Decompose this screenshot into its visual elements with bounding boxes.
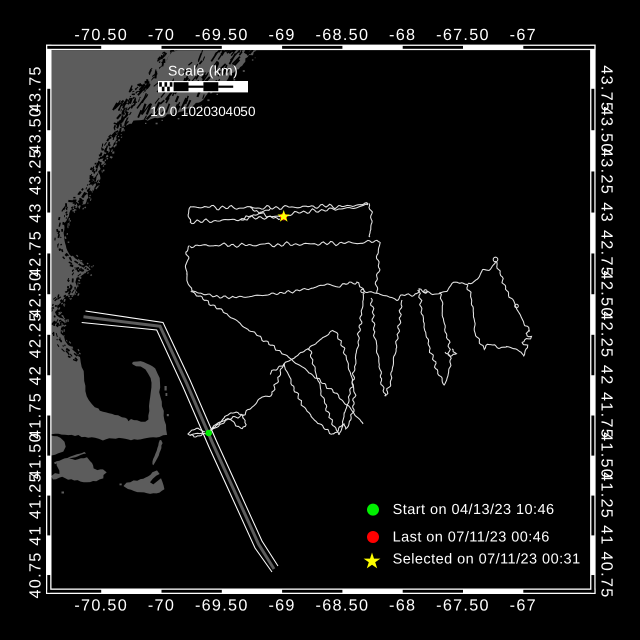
svg-text:43.75: 43.75 [598, 65, 616, 112]
svg-text:43: 43 [27, 202, 45, 223]
svg-text:43.50: 43.50 [27, 107, 45, 154]
svg-text:Selected on 07/11/23 00:31: Selected on 07/11/23 00:31 [393, 552, 581, 568]
svg-text:-68.50: -68.50 [316, 597, 370, 615]
svg-text:Start on 04/13/23 10:46: Start on 04/13/23 10:46 [393, 502, 555, 518]
svg-text:42.25: 42.25 [598, 311, 616, 358]
svg-text:-67.50: -67.50 [436, 26, 490, 44]
svg-text:40: 40 [225, 104, 240, 119]
svg-text:42.50: 42.50 [27, 271, 45, 318]
svg-text:42.75: 42.75 [27, 230, 45, 277]
svg-text:-70: -70 [148, 26, 175, 44]
svg-text:40.75: 40.75 [27, 551, 45, 598]
svg-text:20: 20 [196, 104, 211, 119]
svg-text:10: 10 [181, 104, 196, 119]
svg-text:41: 41 [598, 525, 616, 546]
svg-text:-67: -67 [510, 26, 537, 44]
svg-text:-69.50: -69.50 [195, 26, 249, 44]
svg-text:-68.50: -68.50 [316, 26, 370, 44]
svg-text:40.75: 40.75 [598, 551, 616, 598]
svg-text:41.50: 41.50 [27, 432, 45, 479]
svg-text:Last on 07/11/23 00:46: Last on 07/11/23 00:46 [393, 529, 550, 545]
svg-text:50: 50 [240, 104, 255, 119]
svg-text:41.75: 41.75 [27, 392, 45, 439]
svg-text:42.25: 42.25 [27, 311, 45, 358]
svg-text:30: 30 [211, 104, 226, 119]
svg-text:0: 0 [170, 104, 178, 119]
svg-text:-69.50: -69.50 [195, 597, 249, 615]
svg-text:-70: -70 [148, 597, 175, 615]
svg-text:42: 42 [27, 365, 45, 386]
svg-text:-67.50: -67.50 [436, 597, 490, 615]
svg-text:41.25: 41.25 [27, 472, 45, 519]
svg-text:-70.50: -70.50 [74, 26, 128, 44]
svg-text:41: 41 [27, 525, 45, 546]
svg-text:-70.50: -70.50 [74, 597, 128, 615]
svg-text:-68: -68 [389, 597, 416, 615]
svg-text:43: 43 [598, 202, 616, 223]
svg-text:-68: -68 [389, 26, 416, 44]
svg-text:43.75: 43.75 [27, 65, 45, 112]
svg-text:41.25: 41.25 [598, 472, 616, 519]
svg-text:Scale (km): Scale (km) [168, 63, 238, 79]
svg-text:43.25: 43.25 [598, 148, 616, 195]
svg-text:10: 10 [150, 104, 165, 119]
svg-text:42: 42 [598, 365, 616, 386]
svg-text:-69: -69 [268, 597, 295, 615]
svg-text:43.25: 43.25 [27, 148, 45, 195]
svg-text:43.50: 43.50 [598, 107, 616, 154]
svg-text:-67: -67 [510, 597, 537, 615]
svg-text:-69: -69 [268, 26, 295, 44]
